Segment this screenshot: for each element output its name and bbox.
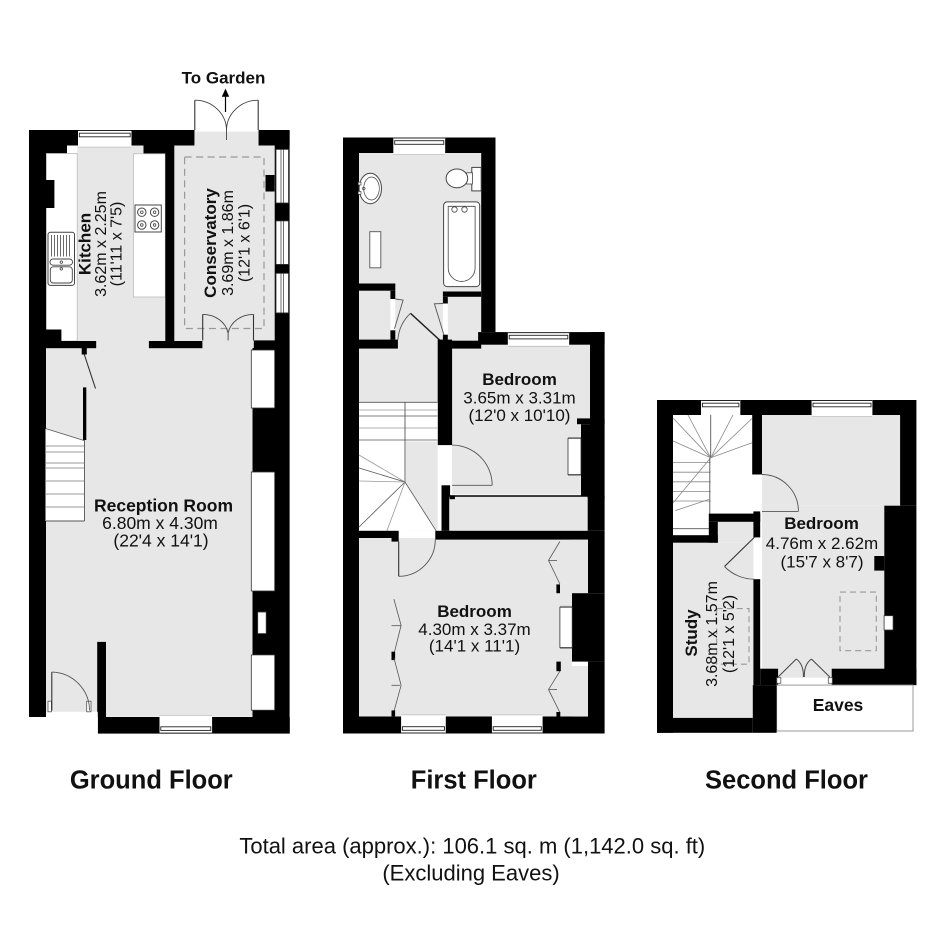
svg-text:Bedroom: Bedroom (784, 514, 859, 533)
svg-text:First Floor: First Floor (411, 767, 537, 795)
svg-text:Eaves: Eaves (813, 695, 864, 715)
svg-text:Conservatory: Conservatory (201, 188, 220, 298)
svg-text:Bedroom: Bedroom (482, 370, 557, 389)
svg-text:Ground Floor: Ground Floor (70, 767, 233, 795)
svg-text:Bedroom: Bedroom (437, 602, 512, 621)
svg-text:3.69m x 1.86m: 3.69m x 1.86m (220, 190, 237, 296)
svg-text:3.68m x 1.57m: 3.68m x 1.57m (704, 581, 721, 687)
svg-text:To Garden: To Garden (182, 68, 266, 87)
svg-text:3.62m x 2.25m: 3.62m x 2.25m (93, 191, 110, 297)
svg-text:Kitchen: Kitchen (75, 213, 94, 275)
svg-text:Second Floor: Second Floor (705, 767, 868, 795)
svg-text:Study: Study (682, 609, 701, 657)
svg-text:3.65m x 3.31m: 3.65m x 3.31m (463, 389, 575, 408)
svg-text:4.76m x 2.62m: 4.76m x 2.62m (766, 534, 878, 553)
svg-text:(15'7 x 8'7): (15'7 x 8'7) (780, 553, 863, 572)
svg-text:(12'1 x 5'2): (12'1 x 5'2) (721, 595, 738, 673)
svg-text:(22'4 x 14'1): (22'4 x 14'1) (113, 531, 208, 551)
svg-text:(14'1 x 11'1): (14'1 x 11'1) (429, 637, 520, 656)
svg-text:(Excluding Eaves): (Excluding Eaves) (382, 861, 559, 886)
svg-text:(12'0 x 10'10): (12'0 x 10'10) (469, 406, 571, 425)
svg-text:Total area (approx.): 106.1 sq: Total area (approx.): 106.1 sq. m (1,142… (239, 834, 705, 859)
svg-text:(11'11 x 7'5): (11'11 x 7'5) (108, 202, 125, 287)
svg-text:(12'1 x 6'1): (12'1 x 6'1) (236, 204, 253, 282)
